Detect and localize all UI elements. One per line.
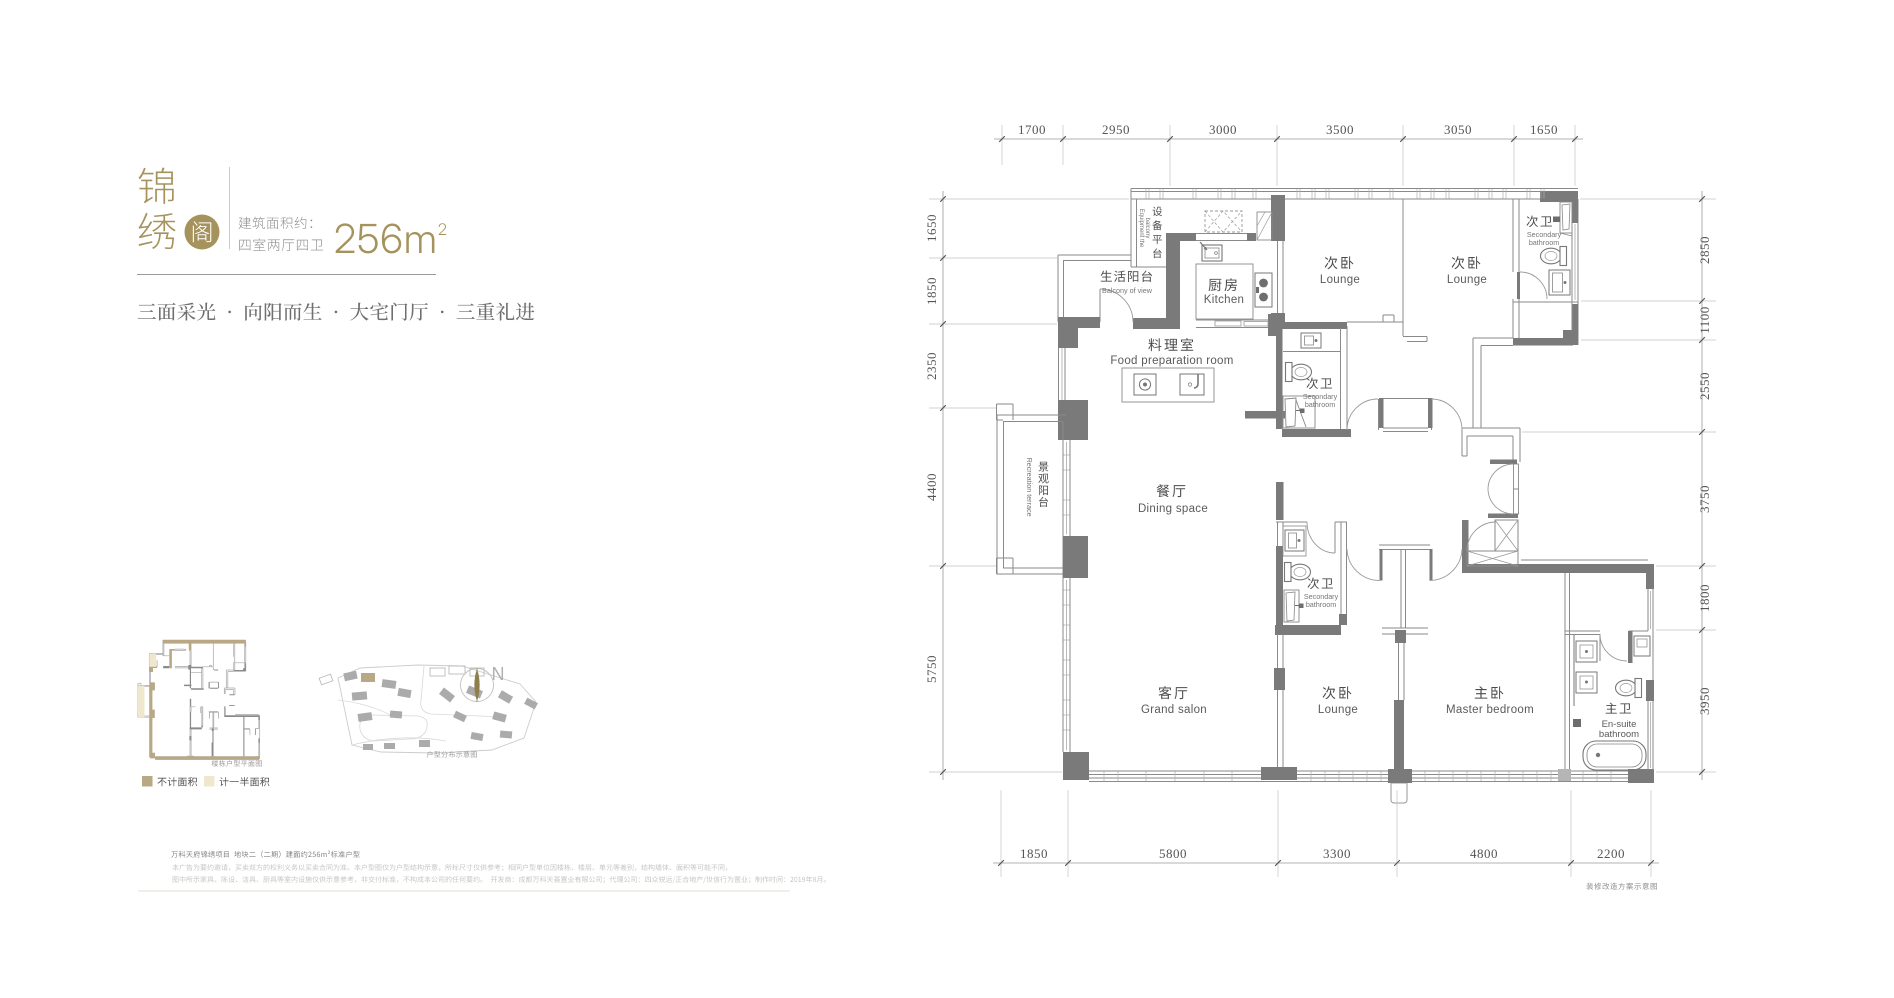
svg-text:2200: 2200 (1597, 846, 1625, 861)
svg-text:1850: 1850 (1020, 846, 1048, 861)
svg-text:Lounge: Lounge (1318, 704, 1358, 716)
svg-text:Balcony of view: Balcony of view (1102, 286, 1153, 295)
svg-text:Equipment the: Equipment the (1138, 209, 1144, 248)
svg-text:2850: 2850 (1697, 236, 1712, 264)
svg-text:3750: 3750 (1697, 485, 1712, 513)
svg-text:Lounge: Lounge (1320, 274, 1360, 286)
svg-text:N: N (492, 664, 505, 684)
svg-text:Dining space: Dining space (1138, 503, 1208, 515)
svg-text:5750: 5750 (924, 655, 939, 683)
svg-text:bathroom: bathroom (1599, 729, 1639, 740)
svg-text:1650: 1650 (924, 214, 939, 242)
svg-text:1850: 1850 (924, 277, 939, 305)
svg-text:Recreation terrace: Recreation terrace (1025, 457, 1034, 516)
svg-text:balcony: balcony (1144, 218, 1150, 239)
svg-text:1650: 1650 (1530, 122, 1558, 137)
svg-text:Lounge: Lounge (1447, 274, 1487, 286)
svg-text:bathroom: bathroom (1305, 400, 1335, 409)
svg-text:4400: 4400 (924, 473, 939, 501)
svg-text:Master bedroom: Master bedroom (1446, 704, 1534, 716)
svg-text:3300: 3300 (1323, 846, 1351, 861)
svg-text:2550: 2550 (1697, 372, 1712, 400)
svg-text:4800: 4800 (1470, 846, 1498, 861)
svg-text:3950: 3950 (1697, 687, 1712, 715)
svg-text:3050: 3050 (1444, 122, 1472, 137)
svg-text:5800: 5800 (1159, 846, 1187, 861)
svg-text:1700: 1700 (1018, 122, 1046, 137)
svg-text:1100: 1100 (1697, 306, 1712, 334)
svg-text:Kitchen: Kitchen (1204, 294, 1244, 306)
svg-text:bathroom: bathroom (1529, 238, 1559, 247)
svg-text:1800: 1800 (1697, 584, 1712, 612)
svg-text:Grand salon: Grand salon (1141, 704, 1207, 716)
svg-text:bathroom: bathroom (1306, 600, 1336, 609)
svg-text:2350: 2350 (924, 352, 939, 380)
svg-text:3500: 3500 (1326, 122, 1354, 137)
svg-text:3000: 3000 (1209, 122, 1237, 137)
svg-text:2950: 2950 (1102, 122, 1130, 137)
svg-text:Food preparation room: Food preparation room (1110, 355, 1233, 367)
